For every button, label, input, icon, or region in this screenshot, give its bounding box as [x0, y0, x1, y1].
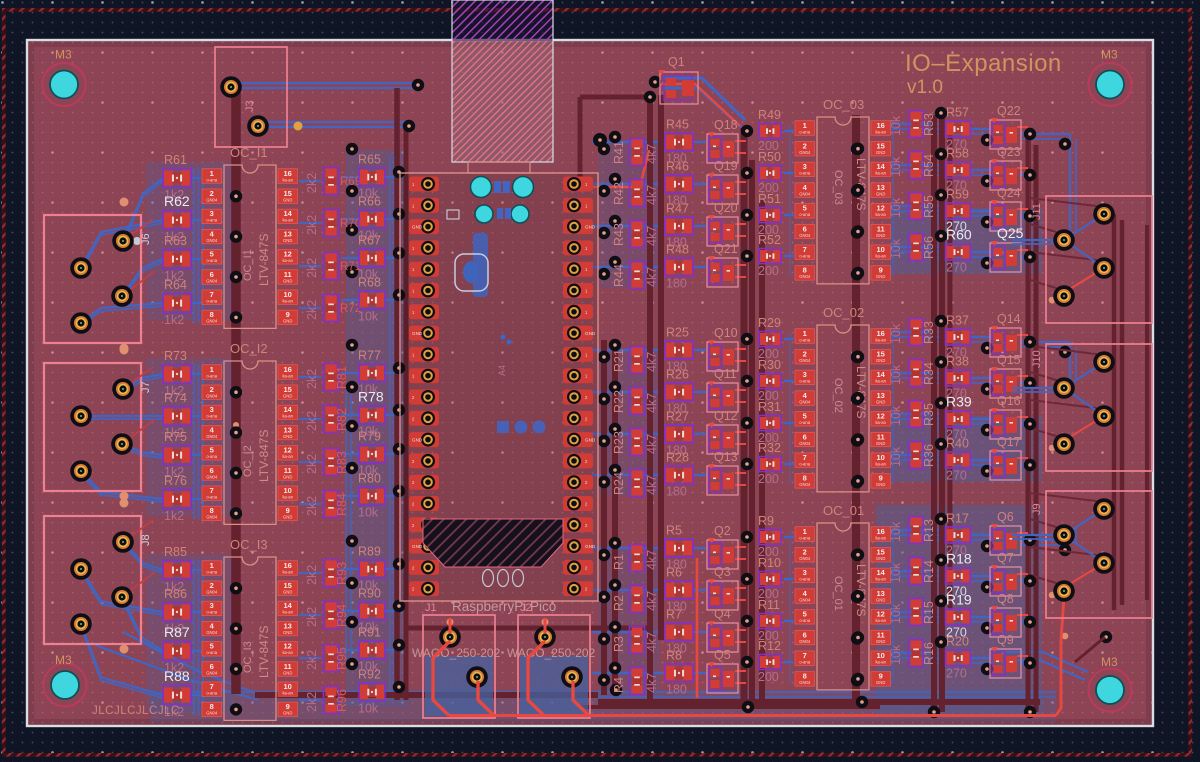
svg-text:10k: 10k [358, 702, 379, 716]
svg-text:R76: R76 [164, 474, 187, 488]
svg-text:200: 200 [758, 472, 779, 486]
svg-text:o-ana: o-ana [206, 650, 217, 655]
svg-text:OC_I1: OC_I1 [230, 145, 268, 160]
svg-text:Q15: Q15 [997, 353, 1021, 367]
svg-text:R54: R54 [922, 154, 936, 177]
svg-text:R20: R20 [946, 635, 969, 649]
svg-text:o-ana: o-ana [206, 218, 217, 223]
svg-text:o-ana: o-ana [799, 659, 810, 664]
svg-text:R83: R83 [335, 451, 349, 474]
svg-text:ka-an: ka-an [875, 379, 886, 384]
svg-text:R42: R42 [612, 182, 626, 205]
svg-text:ka-an: ka-an [875, 129, 886, 134]
svg-text:R49: R49 [758, 108, 781, 122]
svg-text:GND: GND [283, 319, 292, 324]
svg-text:GN04: GN04 [206, 474, 218, 479]
svg-text:o-ana: o-ana [799, 129, 810, 134]
svg-text:R28: R28 [666, 451, 689, 465]
svg-text:GN04: GN04 [799, 556, 811, 561]
svg-text:ka-an: ka-an [282, 494, 293, 499]
svg-text:R2: R2 [612, 595, 626, 611]
svg-text:o-ana: o-ana [799, 618, 810, 623]
svg-text:R6: R6 [666, 566, 682, 580]
svg-text:GND: GND [876, 597, 885, 602]
svg-text:R74: R74 [164, 391, 187, 405]
svg-text:GND: GND [283, 630, 292, 635]
svg-text:10k: 10k [358, 310, 379, 324]
svg-text:R26: R26 [666, 368, 689, 382]
svg-text:R8: R8 [666, 649, 682, 663]
svg-text:WAGO_250-202: WAGO_250-202 [507, 646, 596, 660]
svg-text:GN04: GN04 [799, 597, 811, 602]
svg-text:R33: R33 [922, 321, 936, 344]
svg-text:ka-an: ka-an [282, 650, 293, 655]
svg-text:GND: GND [876, 191, 885, 196]
svg-text:GN04: GN04 [206, 670, 218, 675]
svg-text:Q7: Q7 [997, 551, 1014, 565]
svg-text:R35: R35 [922, 403, 936, 426]
svg-text:ka-an: ka-an [282, 298, 293, 303]
svg-text:2k2: 2k2 [305, 454, 319, 474]
svg-text:10k: 10k [358, 506, 379, 520]
svg-text:o-ana: o-ana [799, 379, 810, 384]
svg-text:R81: R81 [335, 366, 349, 389]
svg-text:270: 270 [946, 261, 967, 275]
svg-text:Q19: Q19 [714, 159, 738, 173]
svg-text:o-ana: o-ana [206, 258, 217, 263]
svg-text:OC_03: OC_03 [832, 170, 844, 205]
svg-text:10k: 10k [889, 405, 903, 426]
svg-text:R88: R88 [164, 668, 190, 684]
svg-text:Q23: Q23 [997, 145, 1021, 159]
svg-text:ka-an: ka-an [875, 171, 886, 176]
svg-text:4k7: 4k7 [645, 632, 659, 652]
svg-text:ka-an: ka-an [282, 454, 293, 459]
svg-text:o-ana: o-ana [799, 337, 810, 342]
svg-text:ka-an: ka-an [875, 337, 886, 342]
svg-text:R41: R41 [612, 141, 626, 164]
svg-text:R25: R25 [666, 326, 689, 340]
svg-text:Q17: Q17 [997, 435, 1021, 449]
svg-text:4k7: 4k7 [645, 475, 659, 495]
svg-text:o-ana: o-ana [206, 569, 217, 574]
svg-text:R93: R93 [335, 562, 349, 585]
svg-text:GND: GND [585, 438, 596, 443]
svg-text:R38: R38 [946, 355, 969, 369]
svg-text:GND: GND [283, 197, 292, 202]
svg-text:2k2: 2k2 [305, 173, 319, 193]
svg-text:4k7: 4k7 [645, 550, 659, 570]
svg-text:GN04: GN04 [799, 274, 811, 279]
svg-text:R37: R37 [946, 314, 969, 328]
svg-text:LTV-847S: LTV-847S [257, 626, 271, 678]
svg-text:Q11: Q11 [714, 367, 737, 381]
svg-text:R34: R34 [922, 362, 936, 385]
svg-text:Q3: Q3 [714, 565, 731, 579]
svg-text:J6: J6 [140, 233, 152, 245]
svg-text:Q21: Q21 [714, 242, 738, 256]
svg-text:R85: R85 [164, 545, 187, 559]
svg-text:10k: 10k [889, 323, 903, 344]
svg-text:10k: 10k [889, 603, 903, 624]
svg-text:180: 180 [666, 277, 687, 291]
svg-text:OC_I3: OC_I3 [230, 537, 268, 552]
svg-text:ka-an: ka-an [875, 618, 886, 623]
svg-text:R65: R65 [358, 153, 381, 167]
svg-text:R4: R4 [612, 677, 626, 693]
svg-text:4k7: 4k7 [645, 352, 659, 372]
svg-text:2k2: 2k2 [305, 692, 319, 712]
svg-text:R91: R91 [358, 626, 381, 640]
svg-text:Q10: Q10 [714, 326, 738, 340]
svg-text:4k7: 4k7 [645, 226, 659, 246]
svg-text:GN04: GN04 [799, 680, 811, 685]
svg-text:OC_I2: OC_I2 [242, 445, 254, 477]
svg-text:J11: J11 [1031, 203, 1043, 220]
svg-text:GN04: GN04 [206, 434, 218, 439]
svg-text:J10: J10 [1031, 350, 1043, 368]
svg-text:R21: R21 [612, 349, 626, 372]
svg-text:270: 270 [946, 667, 967, 681]
svg-text:ka-an: ka-an [282, 218, 293, 223]
svg-text:J7: J7 [140, 381, 152, 393]
svg-text:ka-an: ka-an [875, 420, 886, 425]
svg-text:v1.0: v1.0 [907, 77, 943, 98]
svg-text:4k7: 4k7 [645, 267, 659, 287]
svg-text:10k: 10k [889, 197, 903, 218]
svg-text:10k: 10k [889, 156, 903, 177]
svg-text:4k7: 4k7 [645, 673, 659, 693]
svg-text:R96: R96 [335, 689, 349, 712]
svg-text:2k2: 2k2 [305, 607, 319, 627]
svg-text:GND: GND [412, 438, 423, 443]
svg-text:o-ana: o-ana [206, 690, 217, 695]
svg-text:180: 180 [666, 683, 687, 697]
svg-text:GND: GND [876, 233, 885, 238]
svg-text:R9: R9 [758, 514, 774, 528]
svg-text:GN04: GN04 [799, 399, 811, 404]
svg-text:R50: R50 [758, 150, 781, 164]
svg-text:RaspberryPi Pico: RaspberryPi Pico [452, 599, 556, 614]
svg-text:OC_I3: OC_I3 [242, 641, 254, 673]
svg-text:R73: R73 [164, 349, 187, 363]
svg-text:Q8: Q8 [997, 592, 1014, 606]
svg-text:R7: R7 [666, 608, 682, 622]
svg-text:R40: R40 [946, 437, 969, 451]
svg-text:270: 270 [946, 469, 967, 483]
svg-text:1k2: 1k2 [164, 313, 184, 327]
svg-text:R58: R58 [946, 147, 969, 161]
svg-text:o-ana: o-ana [206, 454, 217, 459]
svg-text:R82: R82 [335, 408, 349, 431]
svg-text:ka-an: ka-an [282, 177, 293, 182]
svg-text:200: 200 [758, 670, 779, 684]
svg-text:GND: GND [876, 482, 885, 487]
svg-text:Q4: Q4 [714, 607, 731, 621]
svg-text:R32: R32 [758, 441, 781, 455]
svg-text:R77: R77 [358, 349, 381, 363]
svg-text:o-ana: o-ana [799, 212, 810, 217]
svg-text:200: 200 [758, 264, 779, 278]
svg-text:R30: R30 [758, 358, 781, 372]
svg-text:OC_03: OC_03 [823, 97, 864, 112]
svg-text:R3: R3 [612, 636, 626, 652]
svg-text:R56: R56 [922, 236, 936, 259]
svg-text:R19: R19 [946, 592, 972, 608]
svg-text:GN04: GN04 [799, 639, 811, 644]
svg-text:2k2: 2k2 [305, 300, 319, 320]
svg-text:GND: GND [585, 544, 596, 549]
svg-text:GND: GND [283, 238, 292, 243]
svg-text:2k2: 2k2 [305, 650, 319, 670]
svg-text:R22: R22 [612, 390, 626, 413]
svg-text:R84: R84 [335, 493, 349, 516]
svg-text:Q12: Q12 [714, 409, 738, 423]
svg-text:GND: GND [412, 544, 423, 549]
svg-text:o-ana: o-ana [206, 494, 217, 499]
svg-text:R89: R89 [358, 545, 381, 559]
svg-text:R92: R92 [358, 668, 381, 682]
svg-text:GND: GND [283, 515, 292, 520]
svg-text:2k2: 2k2 [305, 565, 319, 585]
svg-text:GND: GND [876, 441, 885, 446]
svg-text:R15: R15 [922, 601, 936, 624]
svg-text:ka-an: ka-an [282, 373, 293, 378]
svg-text:R18: R18 [946, 551, 972, 567]
svg-text:LTV-847S: LTV-847S [257, 430, 271, 482]
svg-text:10k: 10k [889, 238, 903, 259]
svg-text:OC_01: OC_01 [823, 503, 864, 518]
svg-text:10k: 10k [889, 364, 903, 385]
svg-text:GND: GND [876, 399, 885, 404]
svg-text:R52: R52 [758, 233, 781, 247]
svg-text:GND: GND [283, 434, 292, 439]
svg-text:180: 180 [666, 485, 687, 499]
svg-text:2k2: 2k2 [305, 258, 319, 278]
svg-text:GN04: GN04 [206, 278, 218, 283]
svg-text:Q16: Q16 [997, 394, 1021, 408]
svg-text:GN04: GN04 [206, 515, 218, 520]
svg-text:GND: GND [283, 589, 292, 594]
svg-text:R11: R11 [758, 598, 780, 612]
svg-text:GN04: GN04 [799, 441, 811, 446]
svg-text:ka-an: ka-an [875, 461, 886, 466]
svg-text:R45: R45 [666, 118, 689, 132]
svg-text:R95: R95 [335, 647, 349, 670]
svg-text:Q13: Q13 [714, 450, 738, 464]
svg-text:R39: R39 [946, 394, 972, 410]
svg-text:R51: R51 [758, 192, 781, 206]
svg-text:o-ana: o-ana [206, 373, 217, 378]
svg-text:GN04: GN04 [799, 233, 811, 238]
svg-text:GN04: GN04 [206, 393, 218, 398]
svg-text:GN04: GN04 [799, 191, 811, 196]
svg-text:o-ana: o-ana [799, 171, 810, 176]
svg-text:GND: GND [876, 274, 885, 279]
svg-text:LTV-847S: LTV-847S [257, 234, 271, 286]
svg-text:R5: R5 [666, 524, 682, 538]
svg-text:M3: M3 [55, 48, 72, 62]
svg-text:M3: M3 [1101, 655, 1118, 669]
svg-text:R90: R90 [358, 587, 381, 601]
svg-text:ka-an: ka-an [875, 253, 886, 258]
svg-text:o-ana: o-ana [206, 177, 217, 182]
svg-text:R79: R79 [358, 430, 381, 444]
svg-text:R59: R59 [946, 188, 969, 202]
svg-text:1k2: 1k2 [164, 509, 184, 523]
svg-text:4k7: 4k7 [645, 185, 659, 205]
svg-text:GND: GND [585, 225, 596, 230]
svg-text:o-ana: o-ana [206, 298, 217, 303]
svg-text:ka-an: ka-an [282, 569, 293, 574]
svg-text:R46: R46 [666, 160, 689, 174]
svg-text:R75: R75 [164, 430, 187, 444]
svg-text:Q14: Q14 [997, 312, 1021, 326]
svg-text:Q18: Q18 [714, 118, 738, 132]
svg-text:M3: M3 [55, 653, 72, 667]
svg-text:R68: R68 [358, 276, 381, 290]
svg-text:2k2: 2k2 [305, 215, 319, 235]
svg-text:o-ana: o-ana [799, 461, 810, 466]
svg-text:WAGO_250-202: WAGO_250-202 [412, 646, 501, 660]
svg-text:GN04: GN04 [206, 238, 218, 243]
svg-text:GND: GND [876, 680, 885, 685]
svg-text:o-ana: o-ana [799, 535, 810, 540]
svg-text:R60: R60 [946, 227, 972, 243]
svg-text:GN04: GN04 [799, 150, 811, 155]
svg-text:ka-an: ka-an [282, 414, 293, 419]
svg-text:R53: R53 [922, 113, 936, 136]
svg-text:R55: R55 [922, 195, 936, 218]
svg-text:R31: R31 [758, 400, 781, 414]
svg-text:R44: R44 [612, 264, 626, 287]
svg-text:R12: R12 [758, 639, 781, 653]
svg-text:o-ana: o-ana [799, 577, 810, 582]
svg-text:ka-an: ka-an [875, 577, 886, 582]
svg-text:GND: GND [876, 358, 885, 363]
svg-text:ka-an: ka-an [282, 690, 293, 695]
svg-text:ka-an: ka-an [875, 659, 886, 664]
svg-text:J8: J8 [140, 534, 152, 546]
svg-text:R66: R66 [358, 195, 381, 209]
svg-text:Q22: Q22 [997, 104, 1021, 118]
svg-text:R94: R94 [335, 604, 349, 627]
svg-text:GND: GND [283, 278, 292, 283]
svg-text:Q24: Q24 [997, 186, 1021, 200]
svg-text:4k7: 4k7 [645, 591, 659, 611]
svg-text:GN04: GN04 [206, 630, 218, 635]
svg-text:R43: R43 [612, 223, 626, 246]
svg-text:R64: R64 [164, 278, 187, 292]
svg-text:GN04: GN04 [799, 358, 811, 363]
svg-text:GN04: GN04 [206, 589, 218, 594]
svg-text:GND: GND [876, 150, 885, 155]
svg-text:R57: R57 [946, 106, 969, 120]
svg-text:ka-an: ka-an [875, 535, 886, 540]
svg-text:Q25: Q25 [997, 225, 1024, 241]
svg-text:R87: R87 [164, 624, 190, 640]
svg-text:R61: R61 [164, 153, 187, 167]
svg-text:R63: R63 [164, 234, 187, 248]
svg-text:GND: GND [283, 393, 292, 398]
svg-text:OC_I2: OC_I2 [230, 341, 268, 356]
svg-text:R86: R86 [164, 587, 187, 601]
svg-text:IO–Expansion: IO–Expansion [905, 50, 1062, 77]
svg-text:10k: 10k [889, 521, 903, 542]
svg-text:Q9: Q9 [997, 633, 1014, 647]
svg-text:R78: R78 [358, 389, 384, 405]
svg-text:R10: R10 [758, 556, 781, 570]
svg-text:2k2: 2k2 [305, 411, 319, 431]
svg-text:R24: R24 [612, 472, 626, 495]
svg-text:2k2: 2k2 [305, 369, 319, 389]
svg-text:o-ana: o-ana [206, 414, 217, 419]
svg-text:OC_01: OC_01 [832, 576, 844, 611]
svg-text:10k: 10k [889, 115, 903, 136]
svg-text:Q5: Q5 [714, 648, 731, 662]
svg-text:OC_02: OC_02 [832, 378, 844, 413]
svg-text:R29: R29 [758, 316, 781, 330]
svg-text:Q2: Q2 [714, 524, 731, 538]
svg-text:R67: R67 [358, 234, 381, 248]
svg-text:R13: R13 [922, 519, 936, 542]
svg-text:GND: GND [585, 331, 596, 336]
svg-text:4k7: 4k7 [645, 144, 659, 164]
svg-text:ka-an: ka-an [875, 212, 886, 217]
svg-text:4k7: 4k7 [645, 393, 659, 413]
svg-text:R16: R16 [922, 642, 936, 665]
svg-text:J9: J9 [1031, 503, 1043, 515]
svg-text:J3: J3 [244, 100, 256, 112]
svg-text:M3: M3 [1101, 48, 1118, 62]
svg-text:ka-an: ka-an [282, 258, 293, 263]
svg-text:R48: R48 [666, 243, 689, 257]
svg-text:R1: R1 [612, 554, 626, 570]
svg-text:Q6: Q6 [997, 510, 1014, 524]
svg-text:ka-an: ka-an [282, 610, 293, 615]
svg-text:GN04: GN04 [206, 711, 218, 716]
svg-text:OC_02: OC_02 [823, 305, 864, 320]
svg-text:A4: A4 [497, 365, 507, 376]
svg-text:R14: R14 [922, 560, 936, 583]
svg-text:R62: R62 [164, 193, 190, 209]
svg-text:R17: R17 [946, 512, 969, 526]
svg-text:GND: GND [412, 225, 423, 230]
svg-text:R47: R47 [666, 202, 689, 216]
svg-text:10k: 10k [889, 644, 903, 665]
svg-text:Q1: Q1 [668, 55, 685, 69]
svg-text:R36: R36 [922, 444, 936, 467]
svg-text:GND: GND [876, 639, 885, 644]
svg-text:R80: R80 [358, 472, 381, 486]
svg-text:R27: R27 [666, 410, 689, 424]
svg-text:Q20: Q20 [714, 201, 738, 215]
svg-text:GND: GND [283, 474, 292, 479]
svg-text:10k: 10k [889, 446, 903, 467]
svg-text:GND: GND [283, 711, 292, 716]
svg-text:GN04: GN04 [799, 482, 811, 487]
svg-text:GN04: GN04 [206, 319, 218, 324]
svg-text:R23: R23 [612, 431, 626, 454]
svg-text:10k: 10k [889, 562, 903, 583]
svg-text:JLCJLCJLCJLC: JLCJLCJLCJLC [92, 705, 180, 717]
svg-text:J2: J2 [520, 602, 532, 614]
svg-text:o-ana: o-ana [799, 420, 810, 425]
svg-text:GN04: GN04 [206, 197, 218, 202]
svg-text:o-ana: o-ana [206, 610, 217, 615]
svg-text:2k2: 2k2 [305, 496, 319, 516]
svg-text:J1: J1 [425, 602, 437, 614]
